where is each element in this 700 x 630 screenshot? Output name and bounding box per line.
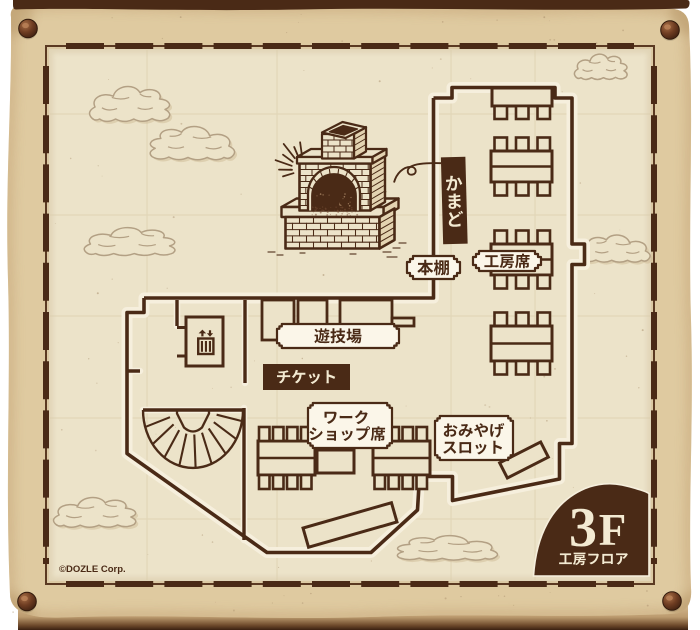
svg-text:F: F xyxy=(599,505,627,555)
svg-text:3: 3 xyxy=(569,497,597,559)
svg-text:©DOZLE Corp.: ©DOZLE Corp. xyxy=(59,564,126,575)
